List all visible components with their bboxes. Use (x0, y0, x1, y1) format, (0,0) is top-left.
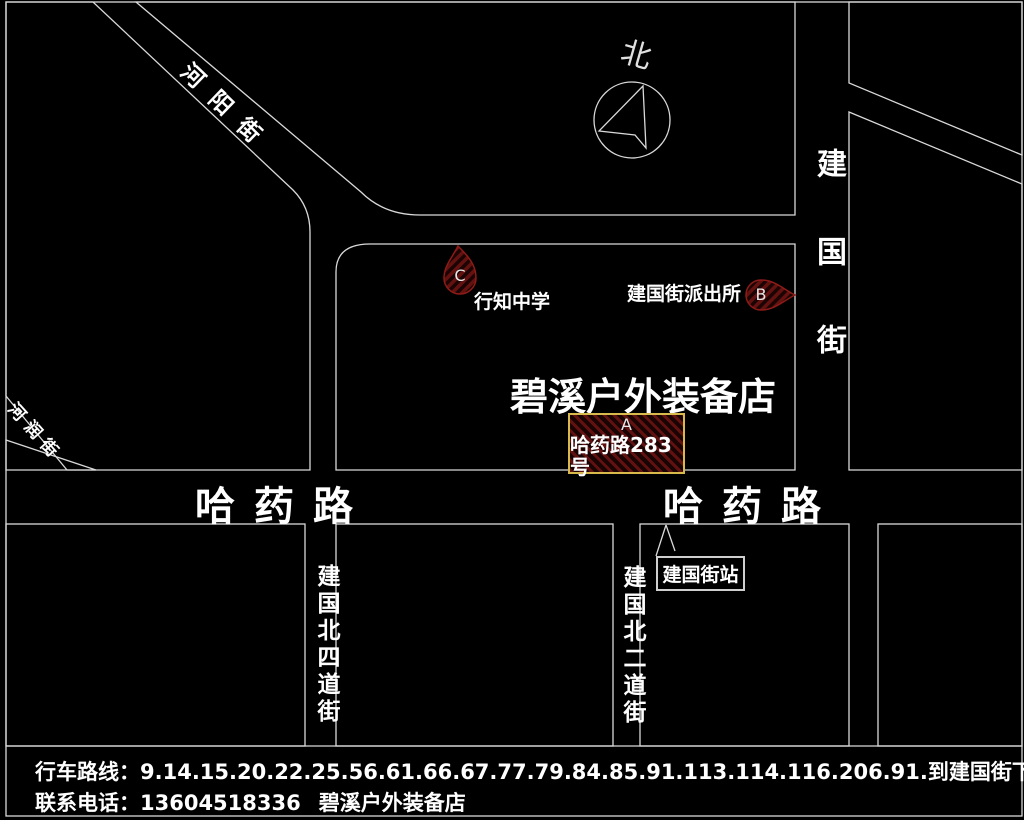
marker-c-letter: C (448, 266, 472, 285)
poi-label-school: 行知中学 (474, 287, 550, 314)
contact-shop-name: 碧溪户外装备店 (319, 791, 466, 815)
block-bottom-1 (6, 524, 305, 746)
street-label-hayao-east: 哈药路 (663, 474, 840, 532)
block-bottom-2 (336, 524, 613, 746)
bus-stop-callout: 建国街站 (656, 556, 745, 591)
compass-needle-icon (599, 86, 646, 148)
marker-a-letter: A (621, 416, 632, 434)
map-canvas: 北 河阳街 河润街 建国街 哈药路 哈药路 建国北四道街 建国北二道街 C 行知… (0, 0, 1024, 820)
street-label-jianguo-north-2nd: 建国北二道街 (615, 565, 649, 727)
block-upper-left (6, 2, 310, 470)
block-center (336, 244, 795, 470)
marker-a-box: A 哈药路283号 (568, 413, 685, 474)
block-bottom-4 (878, 524, 1022, 746)
marker-a-address: 哈药路283号 (570, 434, 683, 478)
compass-icon (594, 82, 670, 158)
driving-directions: 行车路线：9.14.15.20.22.25.56.61.66.67.77.79.… (35, 756, 1024, 786)
block-top-right-1 (849, 2, 1022, 155)
contact-phone: 联系电话：13604518336 (35, 791, 301, 815)
block-top-right-2 (849, 112, 1022, 470)
marker-b-letter: B (749, 285, 773, 304)
street-label-jianguo-north-4th: 建国北四道街 (309, 564, 343, 726)
street-label-hayao-west: 哈药路 (195, 474, 372, 532)
poi-label-police-station: 建国街派出所 (627, 279, 741, 306)
contact-line: 联系电话：13604518336碧溪户外装备店 (35, 787, 466, 817)
street-label-jianguo: 建国街 (806, 148, 850, 412)
